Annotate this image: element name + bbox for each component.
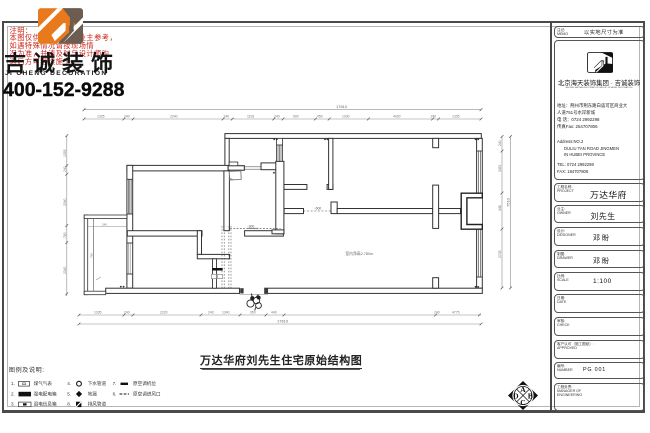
svg-text:17610: 17610 [336, 104, 348, 109]
svg-text:240: 240 [498, 140, 502, 146]
svg-text:B: B [528, 391, 533, 400]
svg-text:240: 240 [224, 114, 230, 118]
svg-text:240: 240 [63, 166, 67, 172]
svg-text:1355: 1355 [63, 149, 67, 157]
svg-text:地漏: 地漏 [88, 390, 98, 397]
svg-text:8.: 8. [67, 402, 71, 407]
svg-text:4775: 4775 [452, 310, 460, 314]
svg-text:2340: 2340 [63, 198, 67, 206]
svg-text:17610: 17610 [277, 319, 289, 324]
svg-text:240: 240 [124, 114, 130, 118]
svg-text:240: 240 [102, 222, 107, 226]
svg-text:240: 240 [434, 310, 440, 314]
svg-text:6.: 6. [113, 391, 117, 396]
svg-text:D: D [513, 391, 519, 400]
svg-text:煤气气表: 煤气气表 [34, 380, 53, 387]
svg-text:448: 448 [498, 205, 502, 211]
svg-text:450: 450 [317, 114, 323, 118]
svg-text:1335: 1335 [97, 114, 105, 118]
svg-text:排风管道: 排风管道 [88, 401, 107, 408]
svg-text:1193: 1193 [247, 114, 254, 118]
svg-text:1335: 1335 [94, 310, 102, 314]
svg-text:2220: 2220 [160, 310, 168, 314]
svg-text:240: 240 [274, 114, 280, 118]
svg-text:7510: 7510 [506, 197, 511, 207]
svg-text:4.: 4. [67, 381, 71, 386]
svg-text:3.: 3. [11, 402, 15, 407]
svg-text:240: 240 [124, 310, 130, 314]
svg-text:1335: 1335 [452, 114, 460, 118]
svg-text:原空调机位: 原空调机位 [133, 380, 156, 387]
svg-text:原空调进风口: 原空调进风口 [133, 390, 161, 397]
svg-text:2735: 2735 [498, 250, 502, 258]
svg-text:室内净高2.780m: 室内净高2.780m [345, 251, 373, 256]
svg-text:2240: 2240 [170, 114, 178, 118]
svg-text:240: 240 [208, 310, 214, 314]
svg-text:1030: 1030 [342, 114, 350, 118]
svg-text:2340: 2340 [63, 266, 67, 274]
svg-text:240: 240 [431, 114, 437, 118]
svg-text:900: 900 [293, 114, 299, 118]
svg-text:780: 780 [63, 232, 67, 238]
svg-text:A: A [520, 385, 526, 394]
svg-text:950: 950 [250, 310, 256, 314]
svg-text:750: 750 [90, 253, 94, 258]
svg-text:440: 440 [271, 310, 277, 314]
svg-text:-600: -600 [315, 207, 322, 211]
svg-text:下水管道: 下水管道 [88, 380, 107, 387]
svg-text:2.: 2. [11, 391, 15, 396]
svg-text:5.: 5. [67, 391, 71, 396]
svg-text:1340: 1340 [222, 310, 230, 314]
svg-text:C: C [520, 398, 525, 407]
svg-text:1.: 1. [11, 381, 15, 386]
svg-text:强电配电箱: 强电配电箱 [34, 390, 57, 397]
svg-text:4030: 4030 [393, 114, 401, 118]
svg-text:3451: 3451 [498, 164, 502, 172]
svg-text:7.: 7. [113, 381, 117, 386]
svg-text:弱电信息箱: 弱电信息箱 [34, 401, 57, 408]
